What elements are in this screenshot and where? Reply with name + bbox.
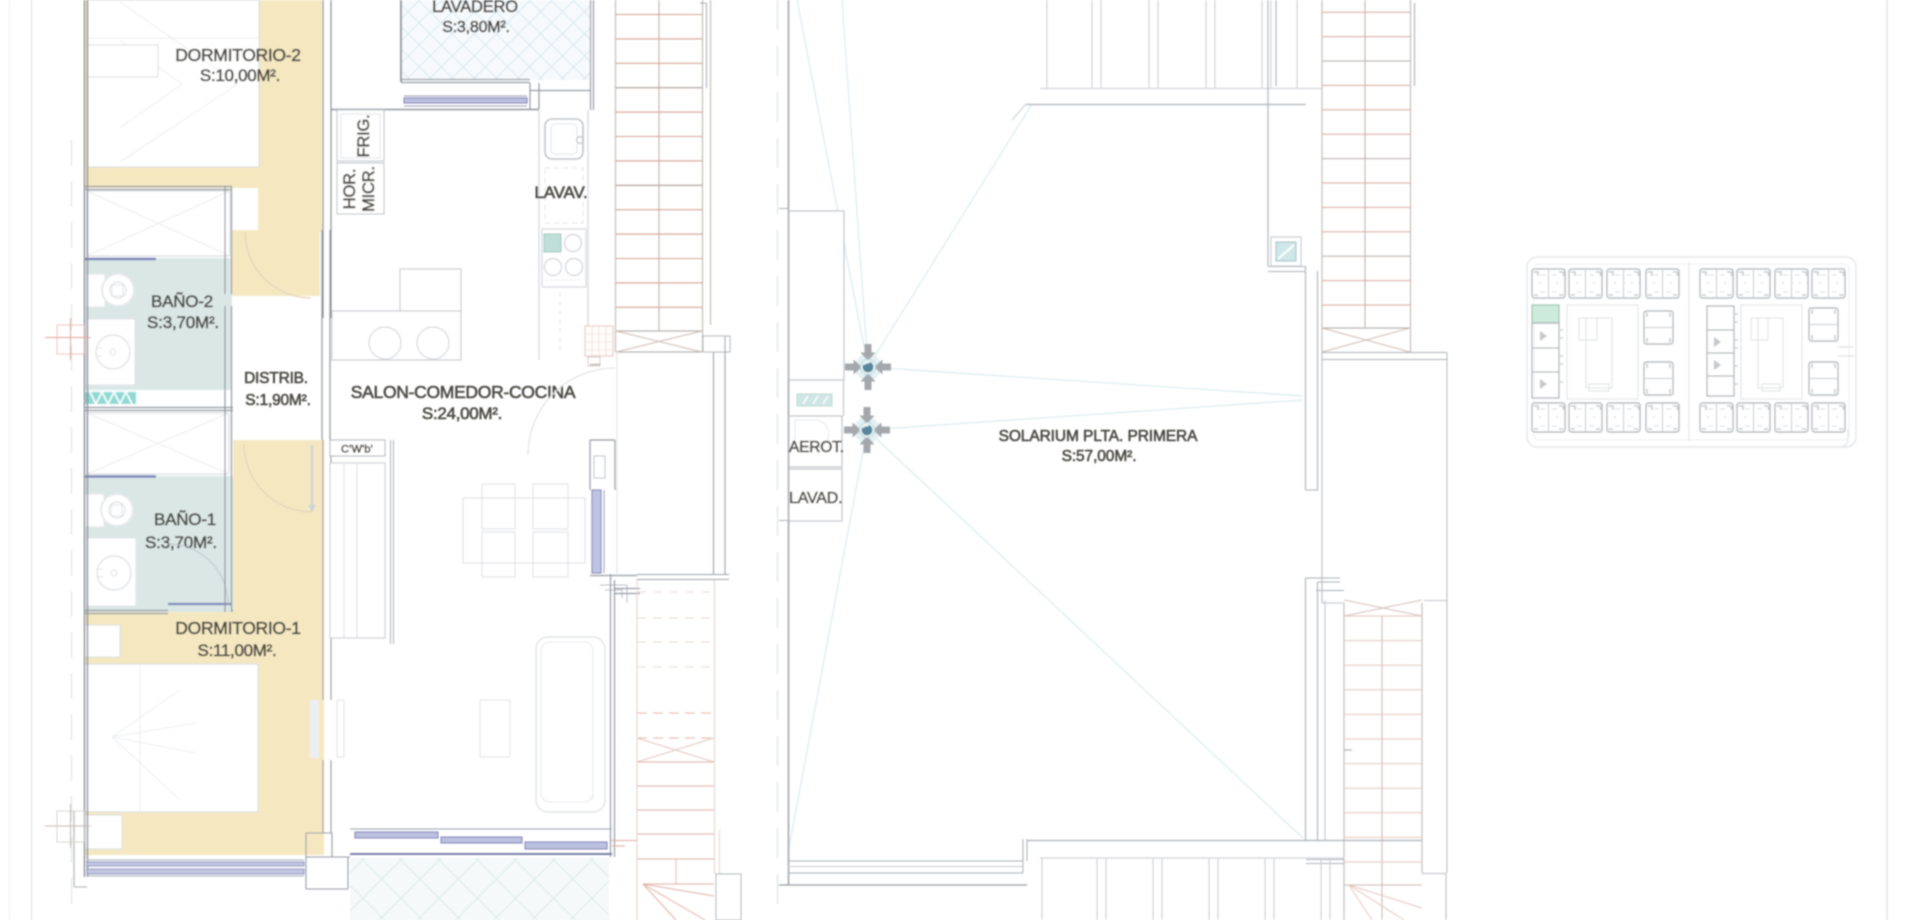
svg-text:DORMITORIO-1: DORMITORIO-1 <box>175 618 300 638</box>
svg-text:S:24,00M².: S:24,00M². <box>422 404 502 423</box>
svg-text:AEROT.: AEROT. <box>789 439 844 456</box>
svg-text:BAÑO-2: BAÑO-2 <box>151 292 213 311</box>
svg-text:MICR.: MICR. <box>360 166 378 212</box>
svg-text:SALON-COMEDOR-COCINA: SALON-COMEDOR-COCINA <box>351 382 576 402</box>
svg-text:LAVAV.: LAVAV. <box>535 183 588 202</box>
svg-text:LAVADERO: LAVADERO <box>432 0 518 16</box>
svg-text:S:57,00M².: S:57,00M². <box>1062 448 1137 465</box>
svg-text:S:3,70M².: S:3,70M². <box>147 313 219 332</box>
svg-text:HOR.: HOR. <box>341 169 359 209</box>
svg-text:DORMITORIO-2: DORMITORIO-2 <box>175 45 300 65</box>
svg-text:S:11,00M².: S:11,00M². <box>198 641 277 660</box>
svg-text:SOLARIUM PLTA. PRIMERA: SOLARIUM PLTA. PRIMERA <box>999 428 1199 445</box>
svg-text:S:10,00M².: S:10,00M². <box>200 66 280 85</box>
svg-text:S:3,70M².: S:3,70M². <box>145 533 217 552</box>
svg-text:DISTRIB.: DISTRIB. <box>244 370 308 387</box>
svg-text:BAÑO-1: BAÑO-1 <box>154 510 216 529</box>
svg-text:FRIG.: FRIG. <box>355 115 373 158</box>
svg-text:LAVAD.: LAVAD. <box>789 490 842 507</box>
svg-text:C'W'b': C'W'b' <box>341 444 373 456</box>
svg-text:S:3,80M².: S:3,80M². <box>442 19 510 36</box>
svg-text:S:1,90M².: S:1,90M². <box>245 392 310 409</box>
